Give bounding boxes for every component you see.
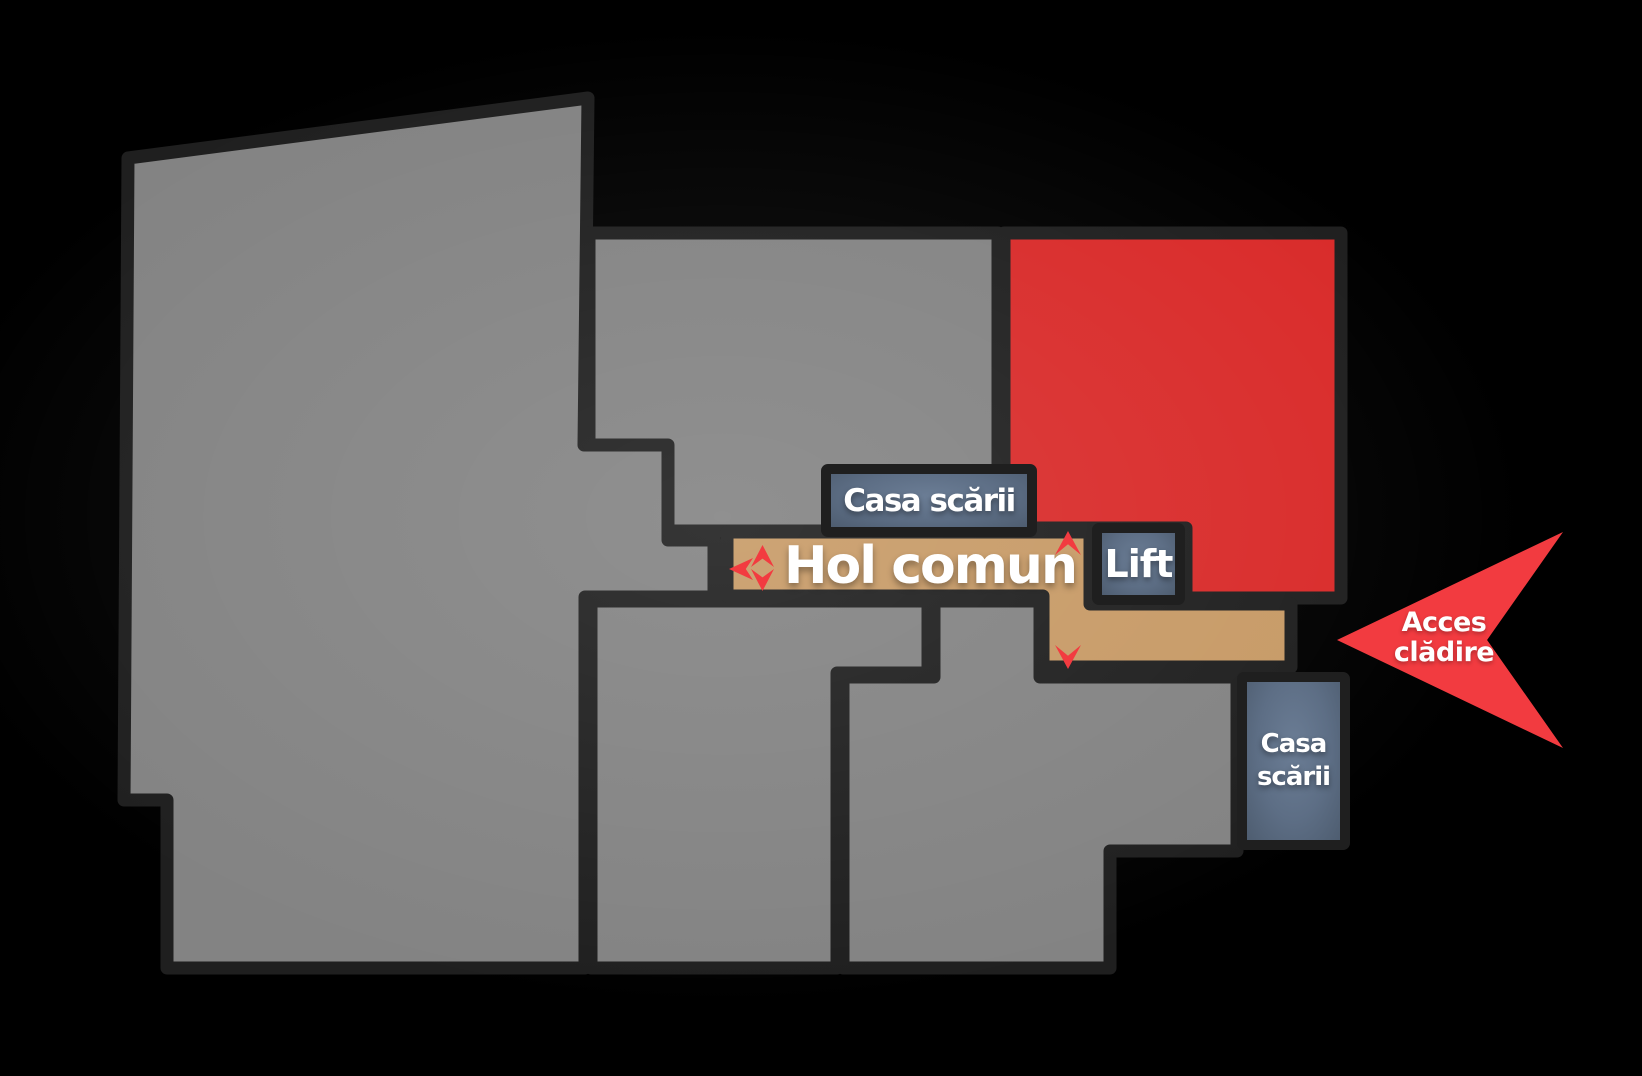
lift-label-text: Lift (1105, 542, 1173, 586)
staircase-top-text: Casa scării (843, 483, 1015, 519)
building-access-label: Acces clădire (1378, 608, 1510, 668)
staircase-bottom-label: Casa scării (1237, 672, 1350, 850)
staircase-bottom-line1: Casa (1261, 728, 1327, 761)
floorplan-canvas: Casa scării Hol comun Lift Casa scării A… (0, 0, 1642, 1076)
staircase-bottom-line2: scării (1257, 761, 1330, 794)
building-access-line1: Acces (1402, 608, 1487, 638)
hallway-label-text: Hol comun (784, 536, 1076, 596)
building-access-line2: clădire (1394, 638, 1494, 668)
lift-label: Lift (1092, 523, 1185, 605)
staircase-bottom-text: Casa scării (1257, 728, 1330, 795)
hallway-label: Hol comun (769, 534, 1091, 598)
staircase-top-label: Casa scării (821, 464, 1037, 537)
